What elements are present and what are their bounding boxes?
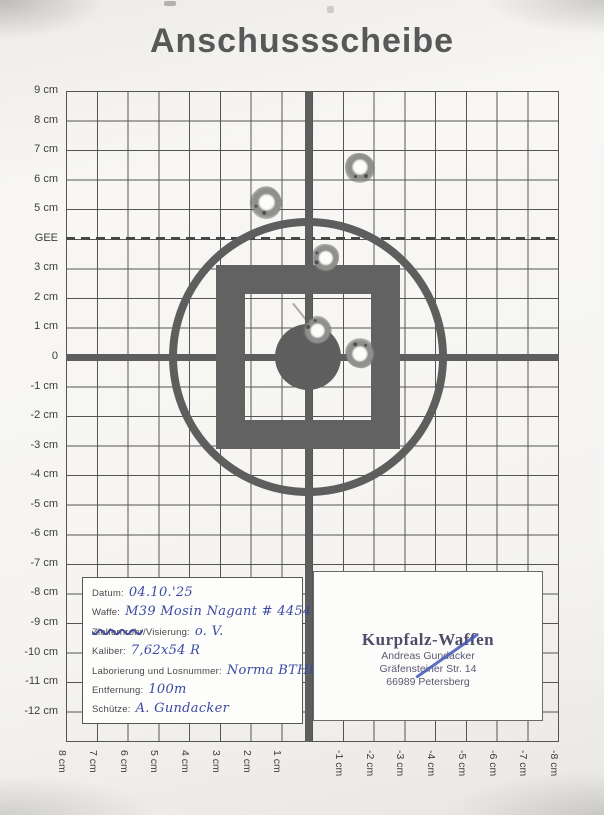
left-axis-label: -6 cm xyxy=(10,527,58,539)
left-axis-label: 2 cm xyxy=(10,291,58,303)
info-label: Kaliber: xyxy=(92,646,126,657)
bottom-axis-label: -4 cm xyxy=(425,750,437,776)
stamp-person-name: Andreas Gundacker xyxy=(314,650,542,663)
left-axis-label: 1 cm xyxy=(10,320,58,332)
info-value-handwritten: 7,62x54 R xyxy=(131,643,200,658)
bottom-axis-label: 5 cm xyxy=(148,750,160,773)
bottom-axis-label: 6 cm xyxy=(118,750,130,773)
bottom-axis-label: -3 cm xyxy=(394,750,406,776)
info-row: Zielfernrohr/Visierung:o. V. xyxy=(92,624,294,643)
bullet-hole-speck xyxy=(315,261,319,265)
info-value-handwritten: Norma BTHP xyxy=(227,663,318,678)
left-axis-label: -9 cm xyxy=(10,616,58,628)
left-axis-label: -11 cm xyxy=(10,675,58,687)
left-axis-label: 6 cm xyxy=(10,173,58,185)
left-axis-label: -4 cm xyxy=(10,468,58,480)
left-axis-label: -3 cm xyxy=(10,439,58,451)
bullet-hole-drip xyxy=(293,303,311,324)
bullet-hole xyxy=(298,311,337,350)
info-value-handwritten: A. Gundacker xyxy=(136,701,230,716)
bottom-axis-label: 1 cm xyxy=(271,750,283,773)
bullet-hole xyxy=(244,181,289,226)
page-title: Anschussscheibe xyxy=(0,22,604,61)
bottom-axis-label: 2 cm xyxy=(241,750,253,773)
bottom-axis-label: -5 cm xyxy=(456,750,468,776)
bullet-hole xyxy=(310,243,340,273)
bottom-axis-label: -6 cm xyxy=(487,750,499,776)
left-axis-label: -2 cm xyxy=(10,409,58,421)
info-label: Schütze: xyxy=(92,704,131,715)
info-row: Laborierung und Losnummer:Norma BTHP xyxy=(92,663,294,682)
left-axis-label: -1 cm xyxy=(10,380,58,392)
bullet-hole xyxy=(343,336,377,370)
info-label: Entfernung: xyxy=(92,685,143,696)
load-info-box: Datum:04.10.'25Waffe:M39 Mosin Nagant # … xyxy=(82,577,303,724)
scanned-target-sheet: Anschussscheibe 9 cm8 cm7 cm6 cm5 cmGEE3… xyxy=(0,0,604,815)
left-axis-label: -12 cm xyxy=(10,705,58,717)
bullet-hole-speck xyxy=(364,174,368,178)
scan-artifact xyxy=(327,6,334,13)
left-axis-label: -10 cm xyxy=(10,646,58,658)
info-value-handwritten: 04.10.'25 xyxy=(129,585,193,600)
info-label: Laborierung und Losnummer: xyxy=(92,666,222,677)
info-row: Kaliber:7,62x54 R xyxy=(92,643,294,662)
bottom-axis-label: -8 cm xyxy=(548,750,560,776)
info-label-struck: Zielfernrohr xyxy=(92,627,143,638)
stamp-company-name: Kurpfalz-Waffen xyxy=(314,630,542,650)
info-label: Waffe: xyxy=(92,607,120,618)
left-axis-label: 7 cm xyxy=(10,143,58,155)
bottom-axis-label: -2 cm xyxy=(364,750,376,776)
bottom-axis-label: 7 cm xyxy=(87,750,99,773)
bullet-hole-speck xyxy=(254,204,258,208)
load-info-rows: Datum:04.10.'25Waffe:M39 Mosin Nagant # … xyxy=(92,585,294,721)
bullet-hole-speck xyxy=(315,252,318,255)
bullet-hole-speck xyxy=(305,325,311,331)
bottom-axis-label: 4 cm xyxy=(179,750,191,773)
info-value-handwritten: 100m xyxy=(148,682,186,697)
dealer-stamp: Kurpfalz-Waffen Andreas Gundacker Gräfen… xyxy=(314,630,542,689)
left-axis-label: 8 cm xyxy=(10,114,58,126)
info-row: Datum:04.10.'25 xyxy=(92,585,294,604)
left-axis-label: 5 cm xyxy=(10,202,58,214)
bottom-axis-label: 3 cm xyxy=(210,750,222,773)
bottom-axis-label: -1 cm xyxy=(333,750,345,776)
bullet-hole-speck xyxy=(364,343,367,346)
scan-artifact xyxy=(164,1,176,6)
left-axis-label: -8 cm xyxy=(10,586,58,598)
left-axis-label: 9 cm xyxy=(10,84,58,96)
dealer-stamp-box: Kurpfalz-Waffen Andreas Gundacker Gräfen… xyxy=(313,571,543,721)
bottom-axis-label: 8 cm xyxy=(56,750,68,773)
left-axis-label: -7 cm xyxy=(10,557,58,569)
bullet-hole-speck xyxy=(354,175,357,178)
left-axis-label: GEE xyxy=(10,232,58,244)
bullet-hole-speck xyxy=(313,319,317,323)
info-value-handwritten: M39 Mosin Nagant # 44547 xyxy=(125,604,320,619)
bullet-hole-speck xyxy=(261,210,267,216)
left-axis-label: 0 xyxy=(10,350,58,362)
info-value-handwritten: o. V. xyxy=(195,624,224,639)
info-row: Schütze:A. Gundacker xyxy=(92,701,294,720)
stamp-city: 66989 Petersberg xyxy=(314,676,542,689)
left-axis-label: 3 cm xyxy=(10,261,58,273)
bullet-hole xyxy=(345,153,375,183)
info-row: Entfernung:100m xyxy=(92,682,294,701)
bullet-hole-speck xyxy=(354,342,359,347)
bottom-axis-label: -7 cm xyxy=(517,750,529,776)
info-label: /Visierung: xyxy=(143,627,190,638)
info-label: Datum: xyxy=(92,588,124,599)
info-row: Waffe:M39 Mosin Nagant # 44547 xyxy=(92,604,294,623)
left-axis-label: -5 cm xyxy=(10,498,58,510)
